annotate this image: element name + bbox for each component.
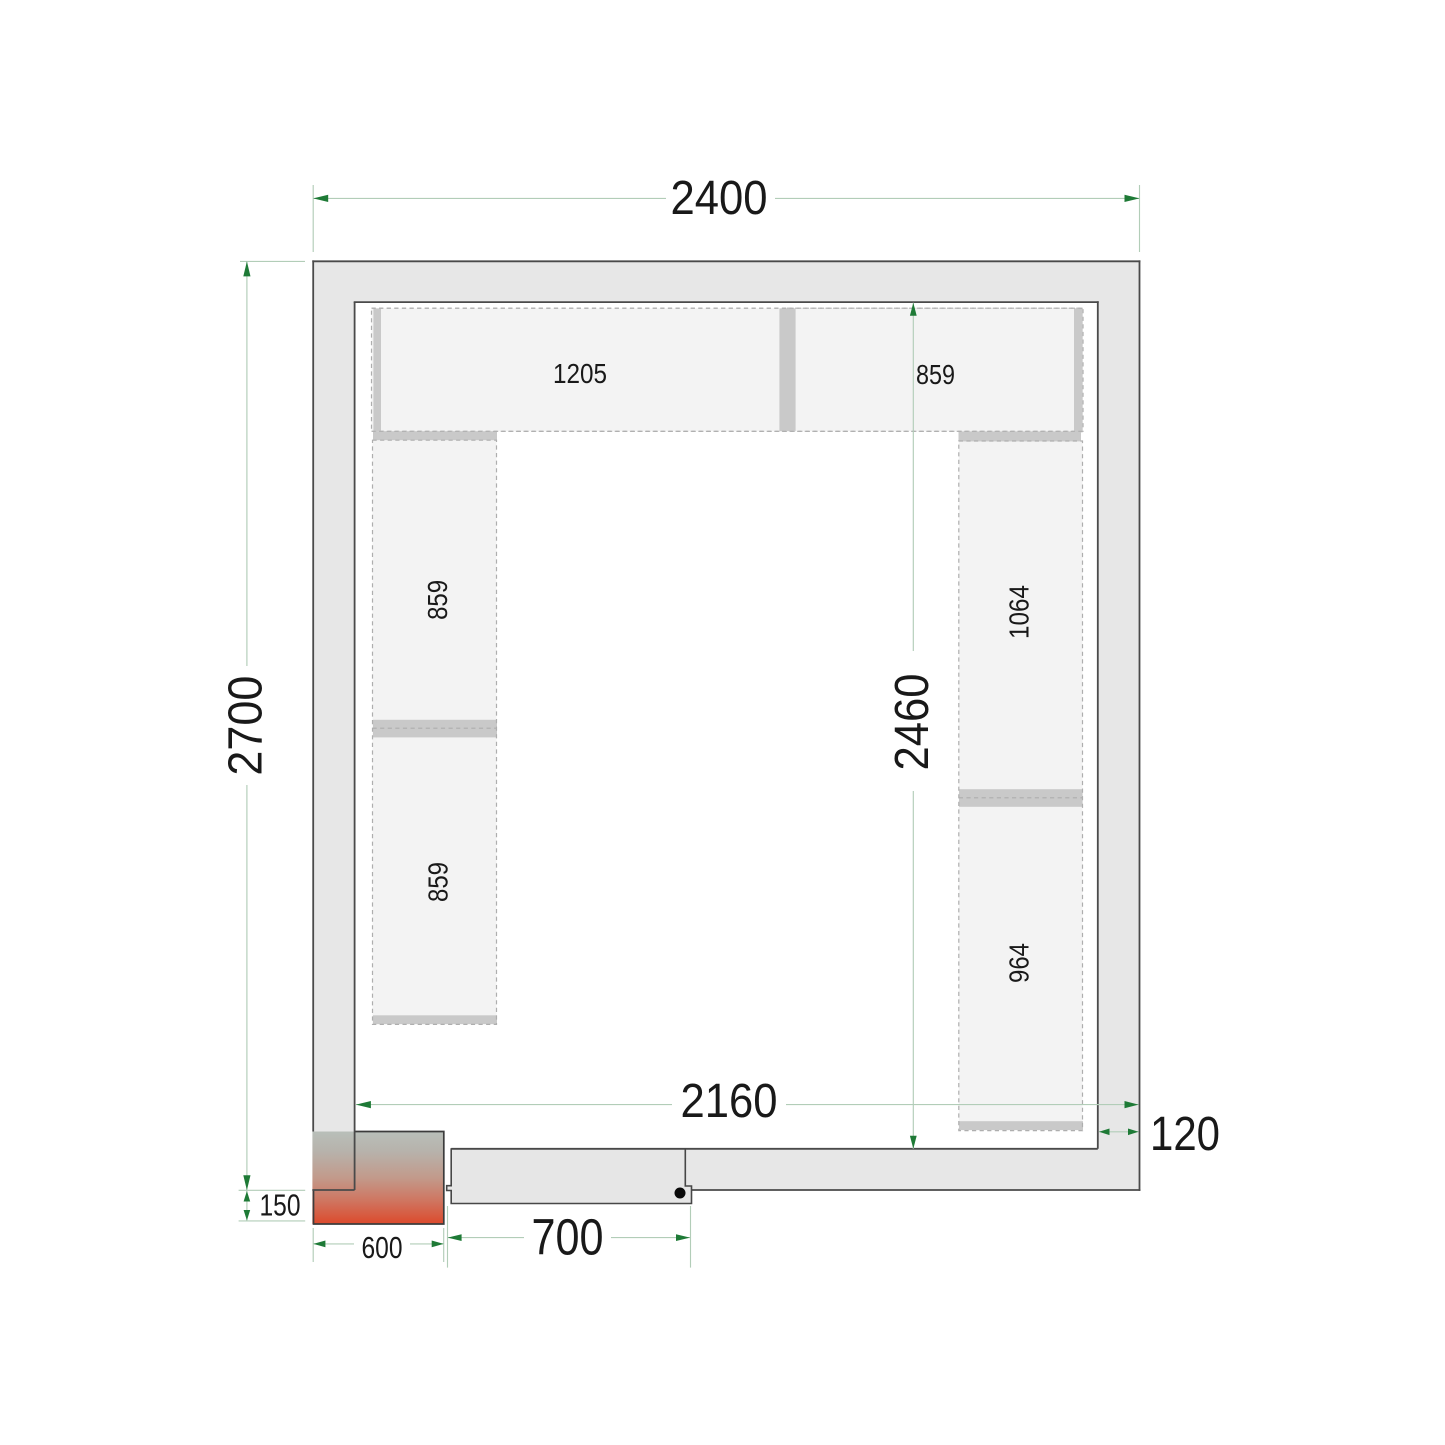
svg-text:1205: 1205 <box>553 358 607 389</box>
svg-text:2700: 2700 <box>220 676 273 776</box>
svg-text:2400: 2400 <box>671 172 768 225</box>
svg-text:600: 600 <box>362 1231 403 1265</box>
svg-text:2160: 2160 <box>681 1075 778 1128</box>
svg-text:150: 150 <box>260 1189 301 1223</box>
svg-text:859: 859 <box>422 862 453 902</box>
svg-text:859: 859 <box>916 359 955 390</box>
svg-text:964: 964 <box>1004 943 1035 983</box>
svg-text:700: 700 <box>532 1209 604 1266</box>
svg-text:1064: 1064 <box>1004 585 1035 639</box>
svg-text:2460: 2460 <box>886 674 939 771</box>
svg-text:859: 859 <box>422 580 453 620</box>
svg-text:120: 120 <box>1150 1108 1220 1161</box>
